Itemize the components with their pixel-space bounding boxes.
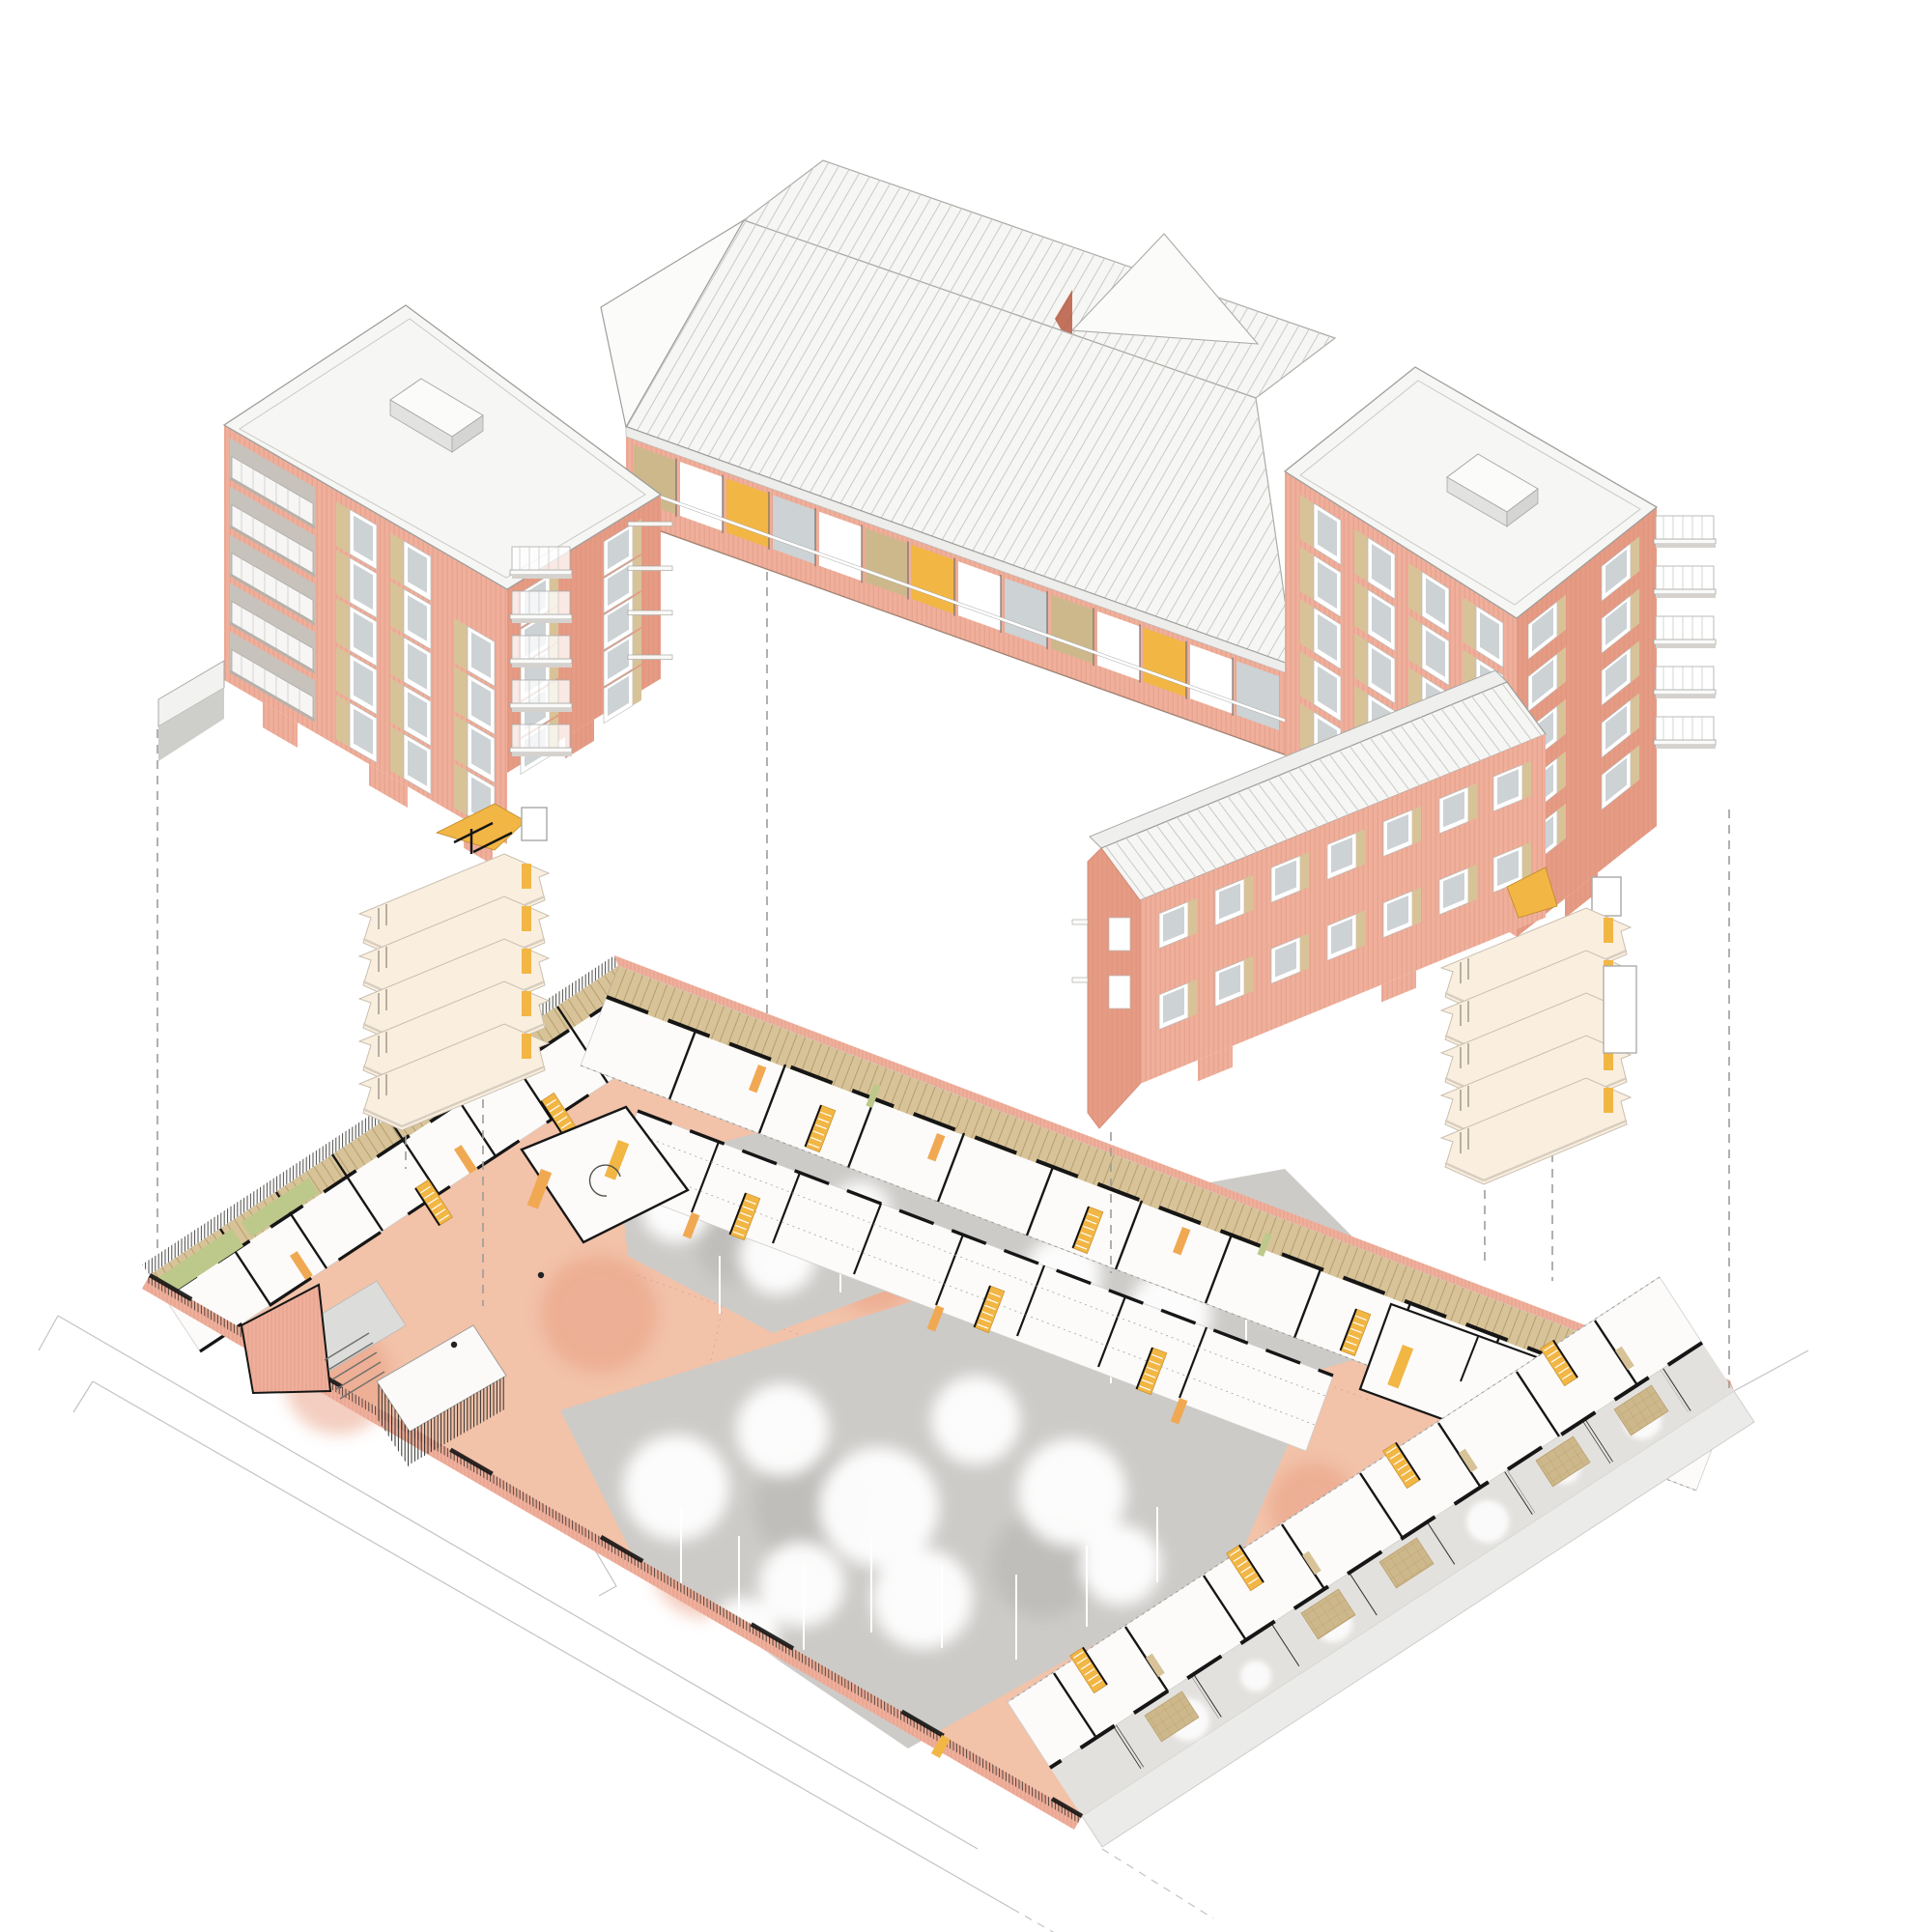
east-tower-balconies <box>1654 516 1716 749</box>
west-tower-corner-balconies <box>510 547 572 756</box>
plaza-dot <box>538 1272 544 1278</box>
west-tower <box>224 305 672 873</box>
core-gable-panel <box>522 808 547 840</box>
gallery-wing <box>601 160 1335 758</box>
core-side-panel <box>1604 966 1636 1053</box>
west-annex <box>158 661 224 761</box>
plaza-dot <box>451 1342 457 1348</box>
core-gable-panel <box>1592 877 1621 916</box>
exploded-axonometric <box>0 0 1932 1932</box>
drawing-canvas <box>0 0 1932 1932</box>
